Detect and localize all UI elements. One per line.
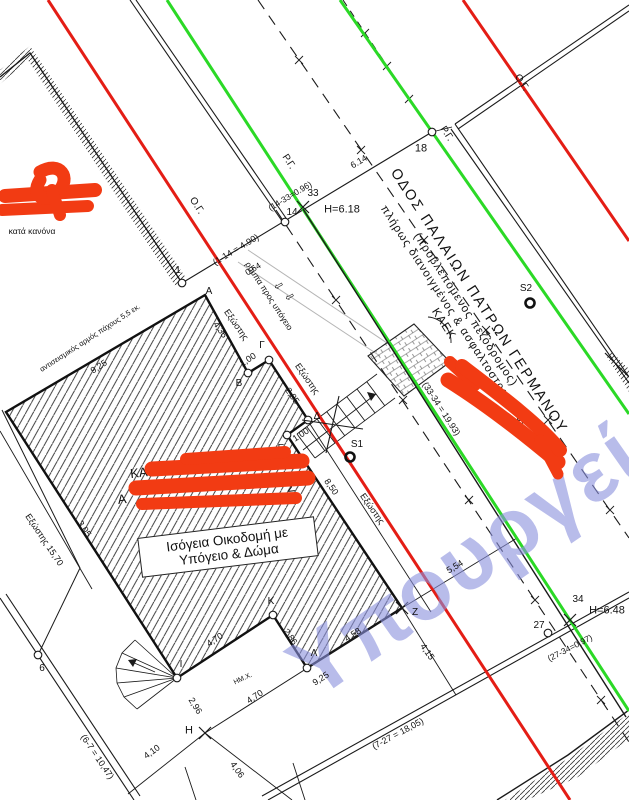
redaction-scribbles <box>0 0 629 800</box>
site-plan-canvas: Υπουργείο ΟΔΟΣ ΠΑΛΑΙΩΝ ΠΑΤΡΩΝ ΓΕΡΜΑΝΟΥ (… <box>0 0 629 800</box>
